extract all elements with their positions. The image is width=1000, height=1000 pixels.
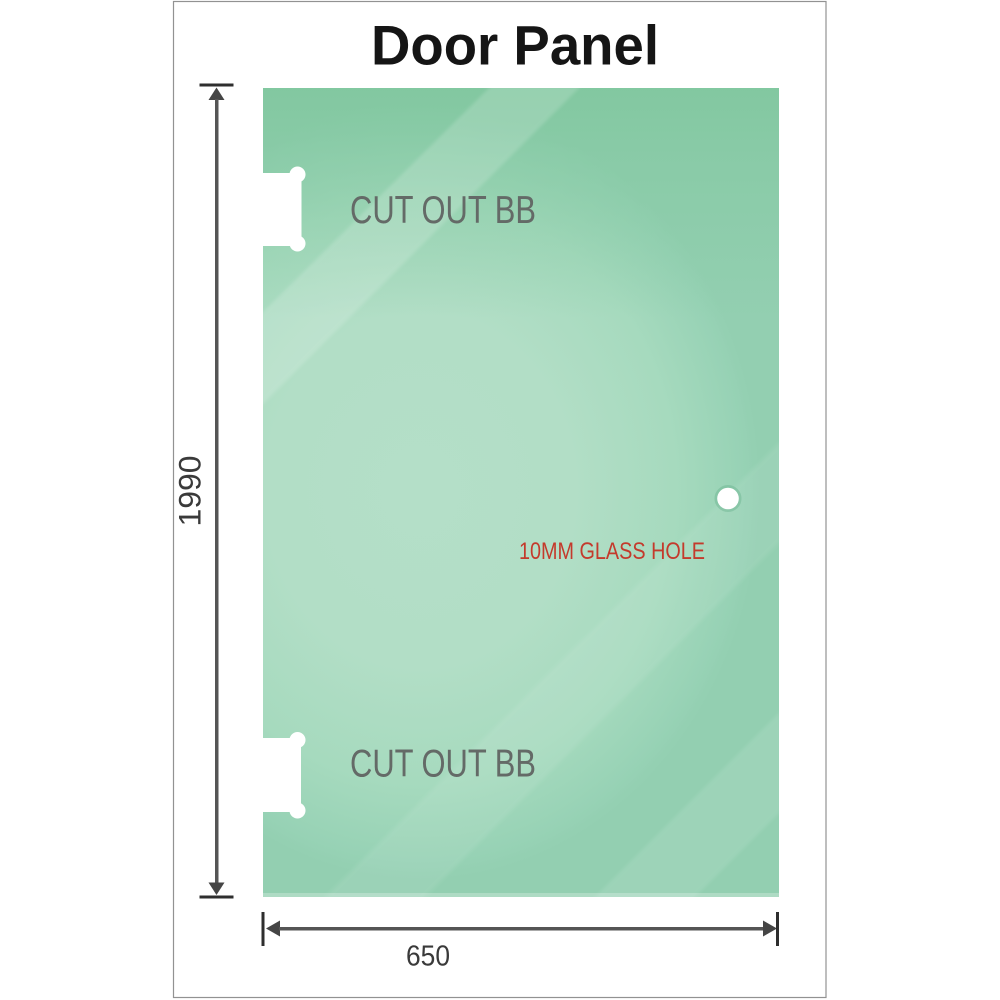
- svg-text:CUT OUT BB: CUT OUT BB: [350, 189, 536, 232]
- svg-text:1990: 1990: [172, 456, 208, 527]
- svg-text:Door Panel: Door Panel: [371, 14, 659, 77]
- svg-text:10MM GLASS HOLE: 10MM GLASS HOLE: [519, 538, 705, 565]
- svg-text:CUT OUT BB: CUT OUT BB: [350, 743, 536, 786]
- svg-text:650: 650: [406, 941, 450, 973]
